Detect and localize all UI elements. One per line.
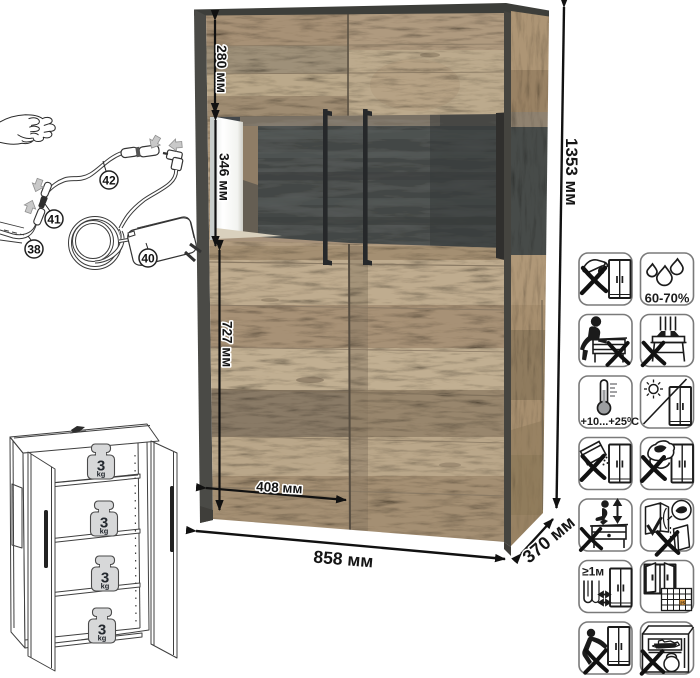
svg-text:38: 38 <box>27 243 41 257</box>
svg-text:42: 42 <box>102 174 116 188</box>
svg-text:727 мм: 727 мм <box>220 321 235 367</box>
svg-text:40: 40 <box>141 252 155 266</box>
svg-text:280 мм: 280 мм <box>214 45 230 93</box>
svg-text:408 мм: 408 мм <box>256 479 303 496</box>
svg-text:41: 41 <box>47 213 61 227</box>
svg-text:≥1м: ≥1м <box>582 565 604 579</box>
svg-text:25: 25 <box>680 601 686 606</box>
svg-text:1353 мм: 1353 мм <box>562 138 581 206</box>
svg-text:346 мм: 346 мм <box>217 153 233 201</box>
svg-text:60-70%: 60-70% <box>645 291 690 306</box>
svg-text:858 мм: 858 мм <box>313 547 374 572</box>
svg-text:+10...+250C: +10...+250C <box>581 415 640 428</box>
